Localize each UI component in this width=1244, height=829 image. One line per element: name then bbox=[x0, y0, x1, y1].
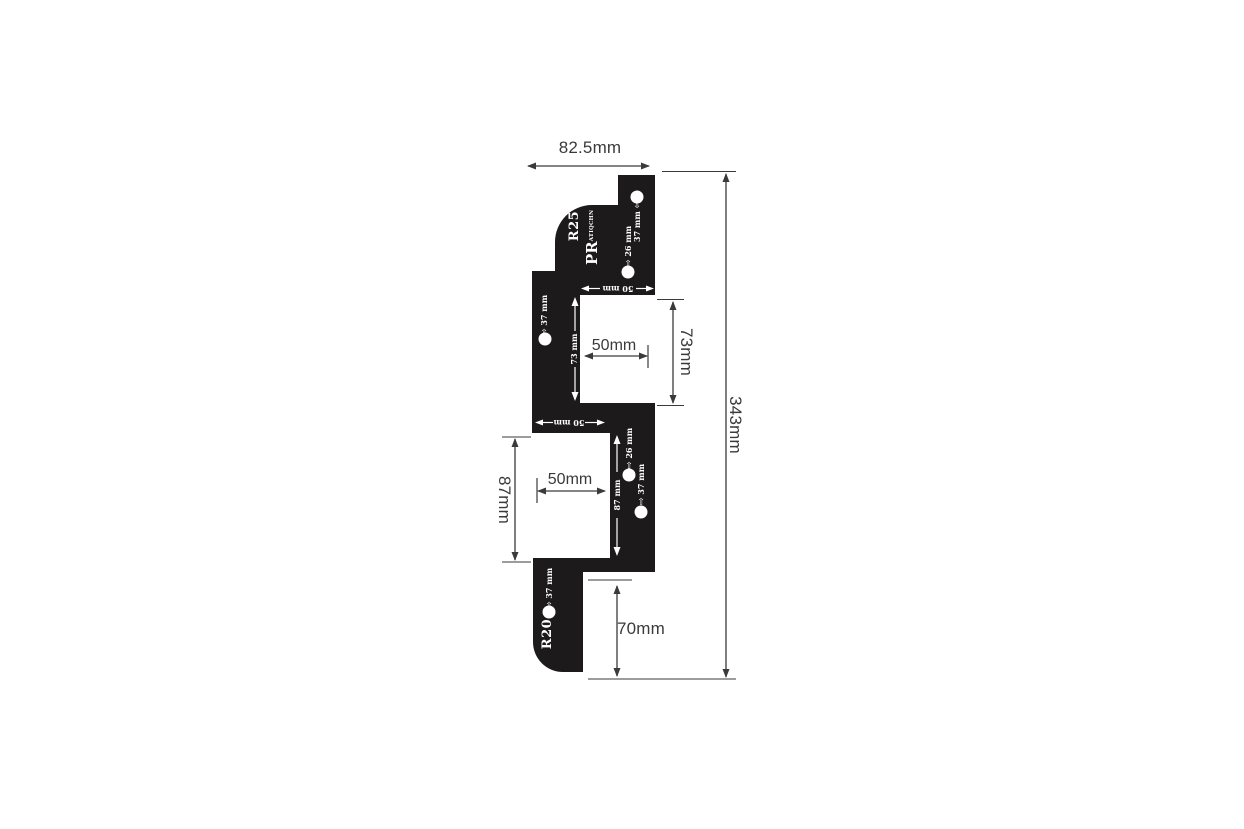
outline-arrow-icon: ⇨ bbox=[540, 328, 550, 336]
arrowhead bbox=[597, 488, 606, 495]
slot-upper-label: 73 mm bbox=[568, 332, 580, 366]
template-hole bbox=[623, 469, 636, 482]
outline-arrow-icon: ⇨ bbox=[625, 461, 635, 469]
arrowhead bbox=[512, 438, 519, 447]
hole-offset-label-37-bottom: ⇨ 37 mm bbox=[543, 571, 555, 609]
hole-offset-label-26-top: ⇨ 26 mm bbox=[622, 229, 634, 267]
outline-arrow-icon: ⇨ bbox=[637, 497, 647, 505]
template-hole bbox=[635, 506, 648, 519]
arrowhead bbox=[639, 353, 648, 360]
template-drawing bbox=[0, 0, 1244, 829]
outline-arrow-icon: ⇨ bbox=[545, 601, 555, 609]
arrowhead bbox=[641, 163, 650, 170]
dim-label-bottom-offset: 70mm bbox=[611, 619, 671, 639]
arrowhead bbox=[723, 173, 730, 182]
arrowhead bbox=[670, 395, 677, 404]
template-radius-lower-label: R20 bbox=[540, 617, 556, 651]
outline-arrow-icon: ⇨ bbox=[624, 259, 634, 267]
brand-logo: PRATIQCHN bbox=[584, 223, 600, 265]
dim-label-upper-50: 50mm bbox=[589, 337, 639, 355]
slot-lower-label: 87 mm bbox=[611, 478, 623, 512]
template-radius-upper-label: R25 bbox=[567, 209, 583, 243]
dim-label-lower-50: 50mm bbox=[545, 471, 595, 489]
template-hole bbox=[622, 266, 635, 279]
arrowhead bbox=[723, 669, 730, 678]
arrowhead bbox=[527, 163, 536, 170]
arrowhead bbox=[614, 668, 621, 677]
brand-logo-sub: ATIQCHN bbox=[589, 210, 595, 241]
dim-label-lower-notch: 87mm bbox=[494, 472, 514, 528]
dim-label-top-width: 82.5mm bbox=[545, 138, 635, 158]
hole-offset-label-37-mid: ⇨ 37 mm bbox=[538, 298, 550, 336]
outline-arrow-icon: ⇦ bbox=[633, 201, 643, 209]
brand-logo-main: PR bbox=[583, 241, 601, 265]
hole-offset-label-26-low: ⇨ 26 mm bbox=[623, 431, 635, 469]
dim-label-overall: 343mm bbox=[725, 390, 745, 460]
arrowhead bbox=[670, 301, 677, 310]
dim-label-upper-notch: 73mm bbox=[676, 324, 696, 380]
arrowhead bbox=[512, 552, 519, 561]
hole-offset-label-37-low: ⇨ 37 mm bbox=[635, 467, 647, 505]
diagram-canvas: 82.5mm 343mm 73mm 50mm 87mm 50mm 70mm R2… bbox=[0, 0, 1244, 829]
arrowhead bbox=[614, 585, 621, 594]
edge-50-lower-label: 50 mm bbox=[551, 417, 587, 428]
edge-50-upper-label: 50 mm bbox=[600, 283, 636, 294]
